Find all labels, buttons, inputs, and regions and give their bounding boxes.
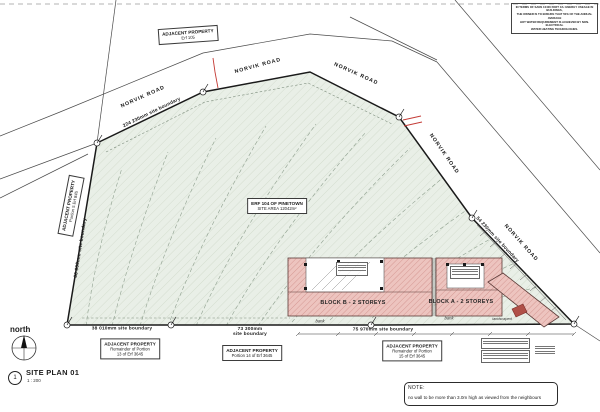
disclaimer-line4: WATER HEATING TECHNOLOGIES. (513, 28, 596, 32)
adjacent-property-13-box: ADJACENT PROPERTY Remainder of Portion 1… (100, 338, 160, 359)
plan-number-bubble: 1 (8, 371, 22, 385)
micro-note-courtyard-a (450, 266, 480, 279)
boundary-dim-bottom-left: 38 010mm site boundary (92, 327, 152, 332)
bank-label-2: bank (444, 316, 453, 321)
boundary-dim-bottom-mid: 73 300mm site boundary (233, 327, 267, 337)
boundary-dim-bottom-mid-line2: site boundary (233, 332, 267, 337)
adjacent-property-15-box: ADJACENT PROPERTY Remainder of Portion 1… (382, 340, 442, 361)
north-label: north (10, 325, 30, 334)
block-a-label: BLOCK A - 2 STOREYS (429, 299, 494, 305)
north-arrow (12, 335, 36, 360)
sans-disclaimer-box: IN TERMS OF SANS 10400 PART XA: ENERGY U… (511, 3, 598, 34)
plan-scale: 1 : 200 (27, 378, 41, 383)
micro-note-bottom-right-3 (534, 344, 556, 358)
site-plan-sheet: NORVIK ROAD NORVIK ROAD NORVIK ROAD NORV… (0, 0, 600, 412)
note-body: no wall to be more than 3.0m high as vie… (408, 395, 554, 400)
erf-104-box: ERF 104 OF PINETOWN SITE AREA 12042m² (247, 198, 307, 214)
note-heading: NOTE: (408, 385, 554, 391)
micro-note-bottom-right-1 (481, 338, 530, 349)
landscaped-label: landscaped (492, 317, 511, 321)
adjacent-14-line2: Portion 14 of Erf 3645 (226, 353, 278, 358)
block-b-label: BLOCK B - 2 STOREYS (320, 300, 385, 306)
erf-104-area: SITE AREA 12042m² (251, 206, 303, 211)
boundary-dim-bottom-right: 75 970mm site boundary (353, 328, 413, 333)
bank-label-1: bank (315, 319, 324, 324)
dimension-line-bottom (296, 332, 576, 336)
plan-title: SITE PLAN 01 (26, 368, 79, 377)
note-box: NOTE: no wall to be more than 3.0m high … (404, 382, 558, 406)
adjacent-15-line3: 15 of Erf 3645 (386, 354, 438, 359)
adjacent-property-14-box: ADJACENT PROPERTY Portion 14 of Erf 3645 (222, 345, 282, 361)
micro-note-bottom-right-2 (481, 350, 530, 363)
micro-note-courtyard-b (336, 262, 368, 276)
adjacent-13-line3: 13 of Erf 3645 (104, 352, 156, 357)
